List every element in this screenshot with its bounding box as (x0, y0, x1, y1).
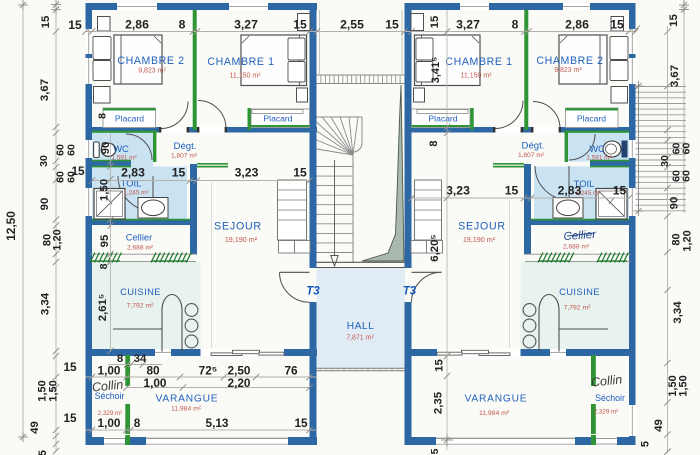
svg-text:3,23: 3,23 (235, 166, 259, 180)
svg-text:8: 8 (179, 18, 186, 32)
svg-text:5: 5 (37, 450, 49, 455)
svg-text:15: 15 (434, 359, 446, 372)
svg-text:WC: WC (113, 143, 129, 154)
svg-text:19,190 m²: 19,190 m² (225, 235, 258, 244)
svg-text:8: 8 (97, 113, 109, 119)
svg-text:Séchoir: Séchoir (595, 393, 625, 403)
svg-text:3,27: 3,27 (456, 18, 480, 32)
svg-text:Placard: Placard (115, 114, 144, 124)
svg-text:3,67: 3,67 (39, 79, 51, 101)
svg-text:30: 30 (38, 155, 50, 167)
svg-text:CHAMBRE 2: CHAMBRE 2 (536, 55, 603, 67)
svg-text:11,984 m²: 11,984 m² (171, 406, 202, 413)
svg-text:15: 15 (610, 18, 624, 32)
svg-text:1,20: 1,20 (682, 230, 694, 251)
svg-text:30: 30 (659, 155, 671, 167)
svg-text:15: 15 (293, 18, 307, 32)
svg-text:Placard: Placard (428, 114, 457, 124)
svg-text:76: 76 (284, 364, 298, 378)
svg-text:2,20: 2,20 (228, 376, 251, 390)
svg-text:5,13: 5,13 (206, 416, 229, 430)
svg-text:3,67: 3,67 (669, 65, 681, 87)
svg-text:7,792 m²: 7,792 m² (127, 303, 155, 310)
svg-text:15: 15 (613, 184, 627, 198)
svg-text:12,50: 12,50 (4, 211, 18, 241)
svg-text:CHAMBRE 1: CHAMBRE 1 (207, 56, 274, 68)
svg-text:1,00: 1,00 (98, 364, 121, 378)
svg-text:3,27: 3,27 (234, 18, 258, 32)
svg-text:CHAMBRE 2: CHAMBRE 2 (117, 55, 184, 67)
svg-text:15: 15 (68, 18, 82, 32)
svg-text:15: 15 (63, 411, 77, 425)
svg-text:2,83: 2,83 (558, 184, 582, 198)
svg-text:5: 5 (640, 441, 652, 447)
svg-text:1,245 m²: 1,245 m² (123, 190, 148, 197)
svg-text:15: 15 (505, 184, 519, 198)
svg-text:9,823 m²: 9,823 m² (138, 68, 166, 75)
svg-text:HALL: HALL (347, 321, 374, 332)
svg-text:15: 15 (63, 360, 77, 374)
svg-text:8: 8 (512, 18, 519, 32)
svg-text:1,807 m²: 1,807 m² (518, 152, 545, 159)
svg-text:SEJOUR: SEJOUR (214, 221, 262, 233)
svg-text:3,41⁵: 3,41⁵ (430, 57, 442, 84)
svg-text:11,984 m²: 11,984 m² (479, 410, 510, 417)
svg-text:11,150 m²: 11,150 m² (230, 73, 262, 80)
svg-text:2,329 m²: 2,329 m² (594, 409, 618, 416)
svg-text:CUISINE: CUISINE (559, 286, 600, 297)
svg-text:2,86: 2,86 (565, 18, 589, 32)
svg-text:CUISINE: CUISINE (120, 286, 161, 297)
svg-text:95: 95 (99, 234, 111, 247)
svg-text:9,823 m²: 9,823 m² (554, 67, 582, 74)
svg-text:CHAMBRE 1: CHAMBRE 1 (445, 56, 512, 68)
svg-text:Dégt.: Dégt. (522, 141, 545, 152)
svg-text:3,34: 3,34 (40, 292, 52, 315)
svg-text:2,61⁵: 2,61⁵ (97, 294, 109, 322)
svg-text:2,688 m²: 2,688 m² (563, 244, 590, 251)
svg-text:11,150 m²: 11,150 m² (461, 73, 493, 80)
svg-text:1,807 m²: 1,807 m² (171, 153, 198, 160)
svg-text:72⁵: 72⁵ (199, 364, 218, 378)
svg-text:2,35: 2,35 (433, 391, 445, 414)
svg-text:15: 15 (429, 15, 441, 28)
svg-text:WC: WC (589, 143, 605, 154)
svg-text:Placard: Placard (577, 114, 606, 124)
svg-text:6,20⁵: 6,20⁵ (429, 234, 441, 262)
svg-text:60: 60 (681, 143, 693, 155)
svg-text:19,190 m²: 19,190 m² (463, 235, 496, 244)
svg-text:15: 15 (385, 18, 399, 32)
svg-text:1,591 m²: 1,591 m² (586, 155, 611, 162)
svg-text:15: 15 (172, 166, 186, 180)
svg-text:2,688 m²: 2,688 m² (127, 245, 154, 252)
svg-text:2,86: 2,86 (125, 18, 149, 32)
svg-text:15: 15 (293, 166, 307, 180)
svg-text:2,83: 2,83 (121, 166, 145, 180)
svg-text:15: 15 (71, 164, 85, 178)
svg-text:1,50: 1,50 (48, 380, 60, 401)
svg-text:1,00: 1,00 (98, 416, 121, 430)
svg-text:Cellier: Cellier (126, 232, 153, 243)
svg-text:49: 49 (29, 421, 41, 434)
svg-text:1,50: 1,50 (99, 179, 111, 201)
svg-text:60: 60 (66, 144, 78, 156)
svg-text:T3: T3 (306, 286, 320, 298)
svg-text:5: 5 (429, 448, 441, 454)
svg-text:1,50: 1,50 (678, 375, 690, 396)
svg-text:1,00: 1,00 (144, 376, 167, 390)
svg-text:90: 90 (39, 198, 51, 211)
svg-text:T3: T3 (403, 286, 417, 298)
svg-text:2,55: 2,55 (340, 18, 364, 32)
svg-text:8: 8 (428, 140, 440, 146)
svg-text:8: 8 (134, 416, 141, 430)
svg-text:Dégt.: Dégt. (174, 141, 197, 152)
svg-text:90: 90 (669, 197, 681, 210)
svg-text:49: 49 (653, 419, 665, 432)
svg-text:15: 15 (668, 14, 680, 27)
svg-text:1,20: 1,20 (52, 229, 64, 250)
svg-text:7,792 m²: 7,792 m² (564, 305, 592, 312)
svg-text:7,871 m²: 7,871 m² (346, 335, 374, 342)
svg-text:15: 15 (40, 15, 52, 28)
svg-text:15: 15 (294, 416, 308, 430)
svg-text:3,34: 3,34 (672, 301, 684, 324)
svg-text:60: 60 (681, 170, 693, 182)
svg-text:Placard: Placard (263, 114, 292, 124)
svg-text:1,591 m²: 1,591 m² (111, 155, 136, 162)
svg-text:VARANGUE: VARANGUE (156, 394, 219, 405)
svg-text:34: 34 (134, 353, 147, 365)
svg-text:VARANGUE: VARANGUE (465, 394, 528, 405)
svg-text:SEJOUR: SEJOUR (458, 221, 506, 233)
